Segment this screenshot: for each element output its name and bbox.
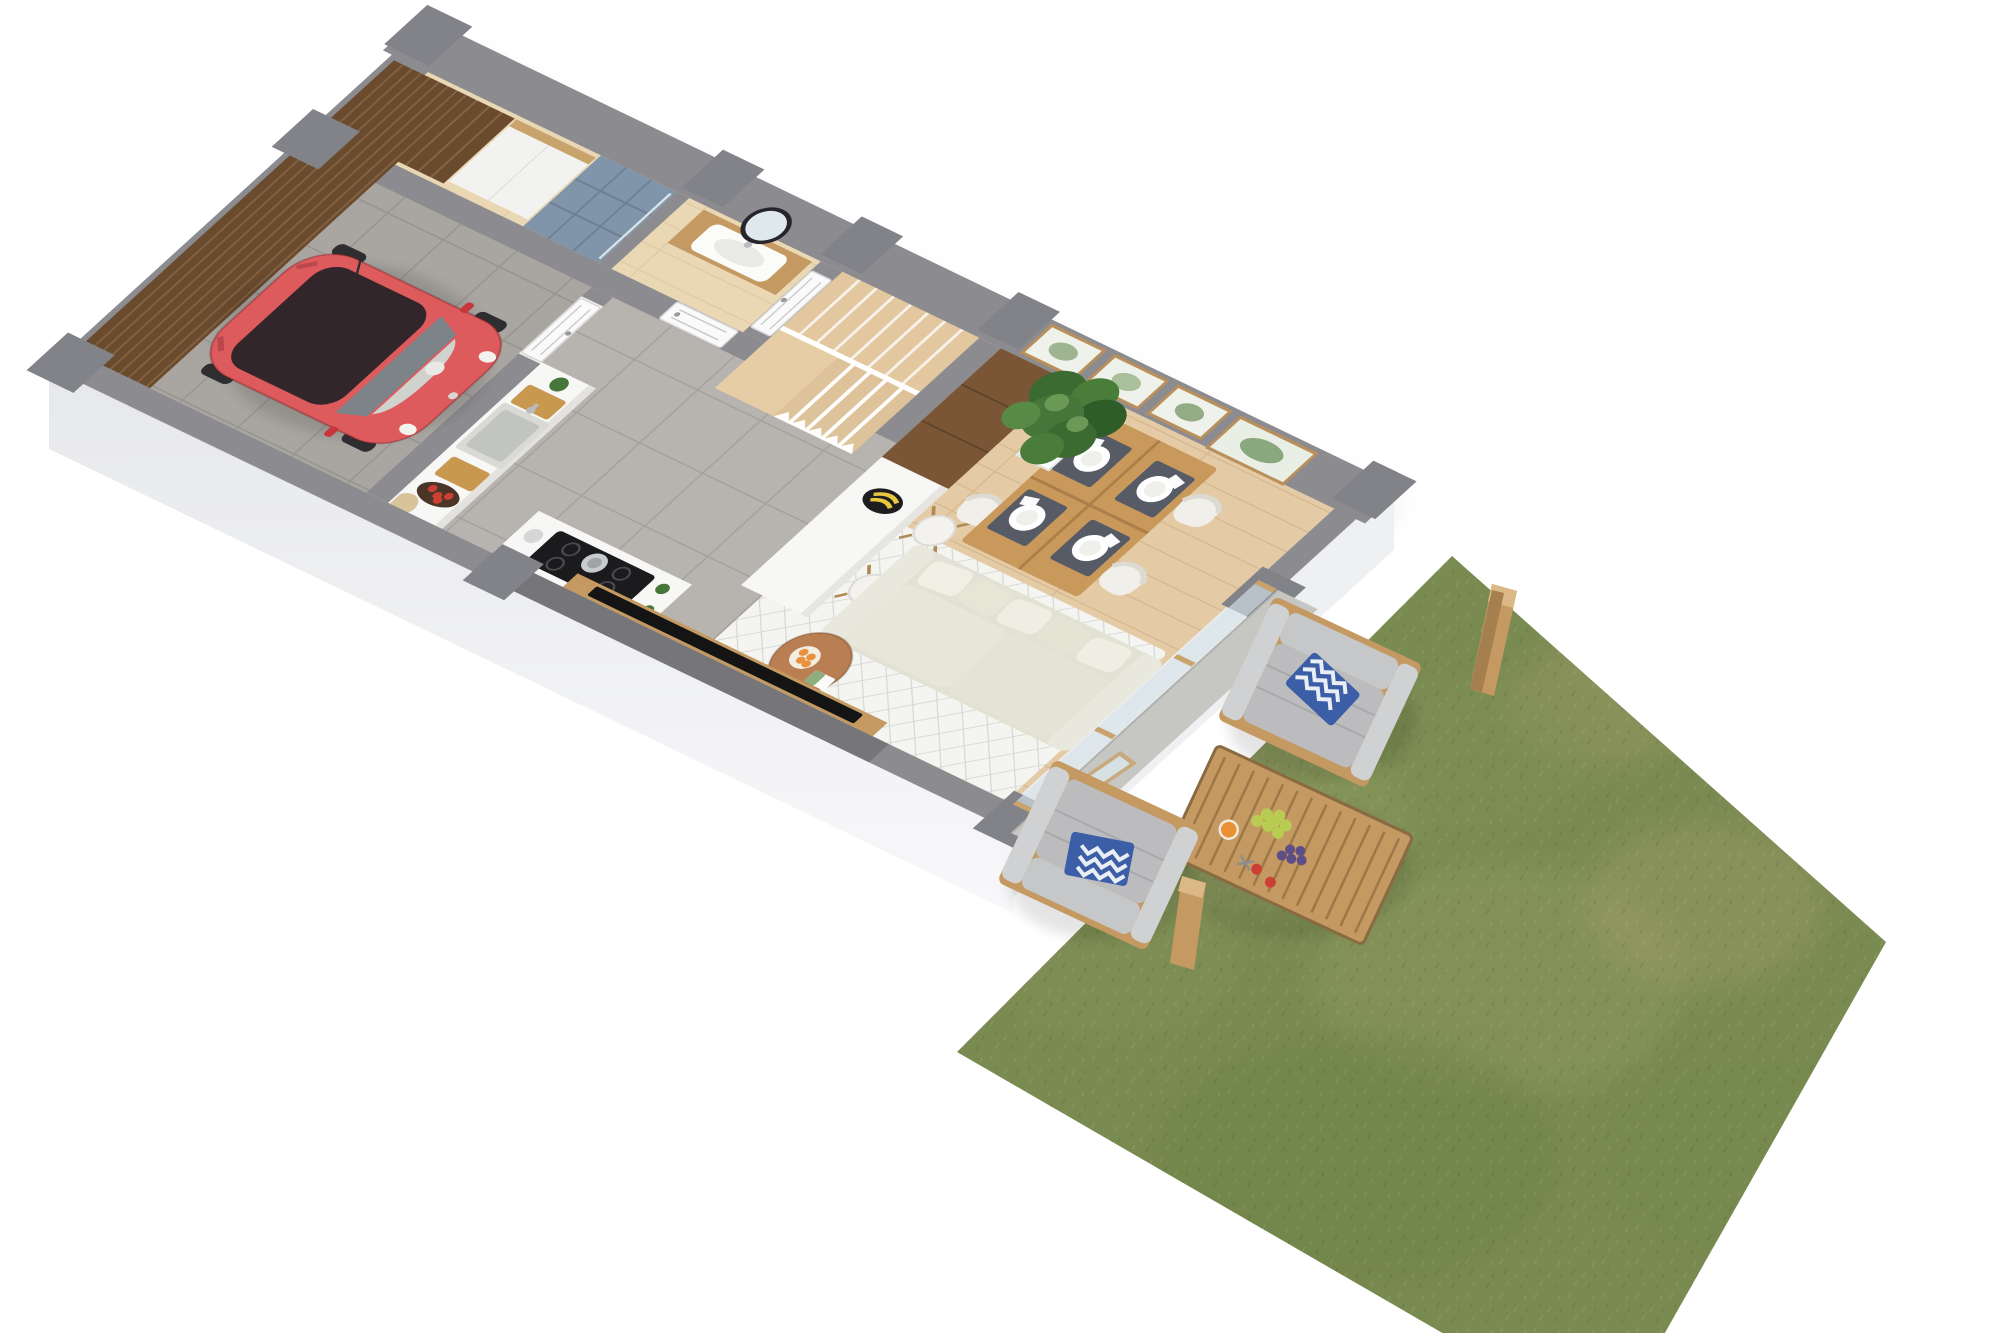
- floorplan-svg: [0, 0, 2000, 1333]
- floorplan-render: [0, 0, 2000, 1333]
